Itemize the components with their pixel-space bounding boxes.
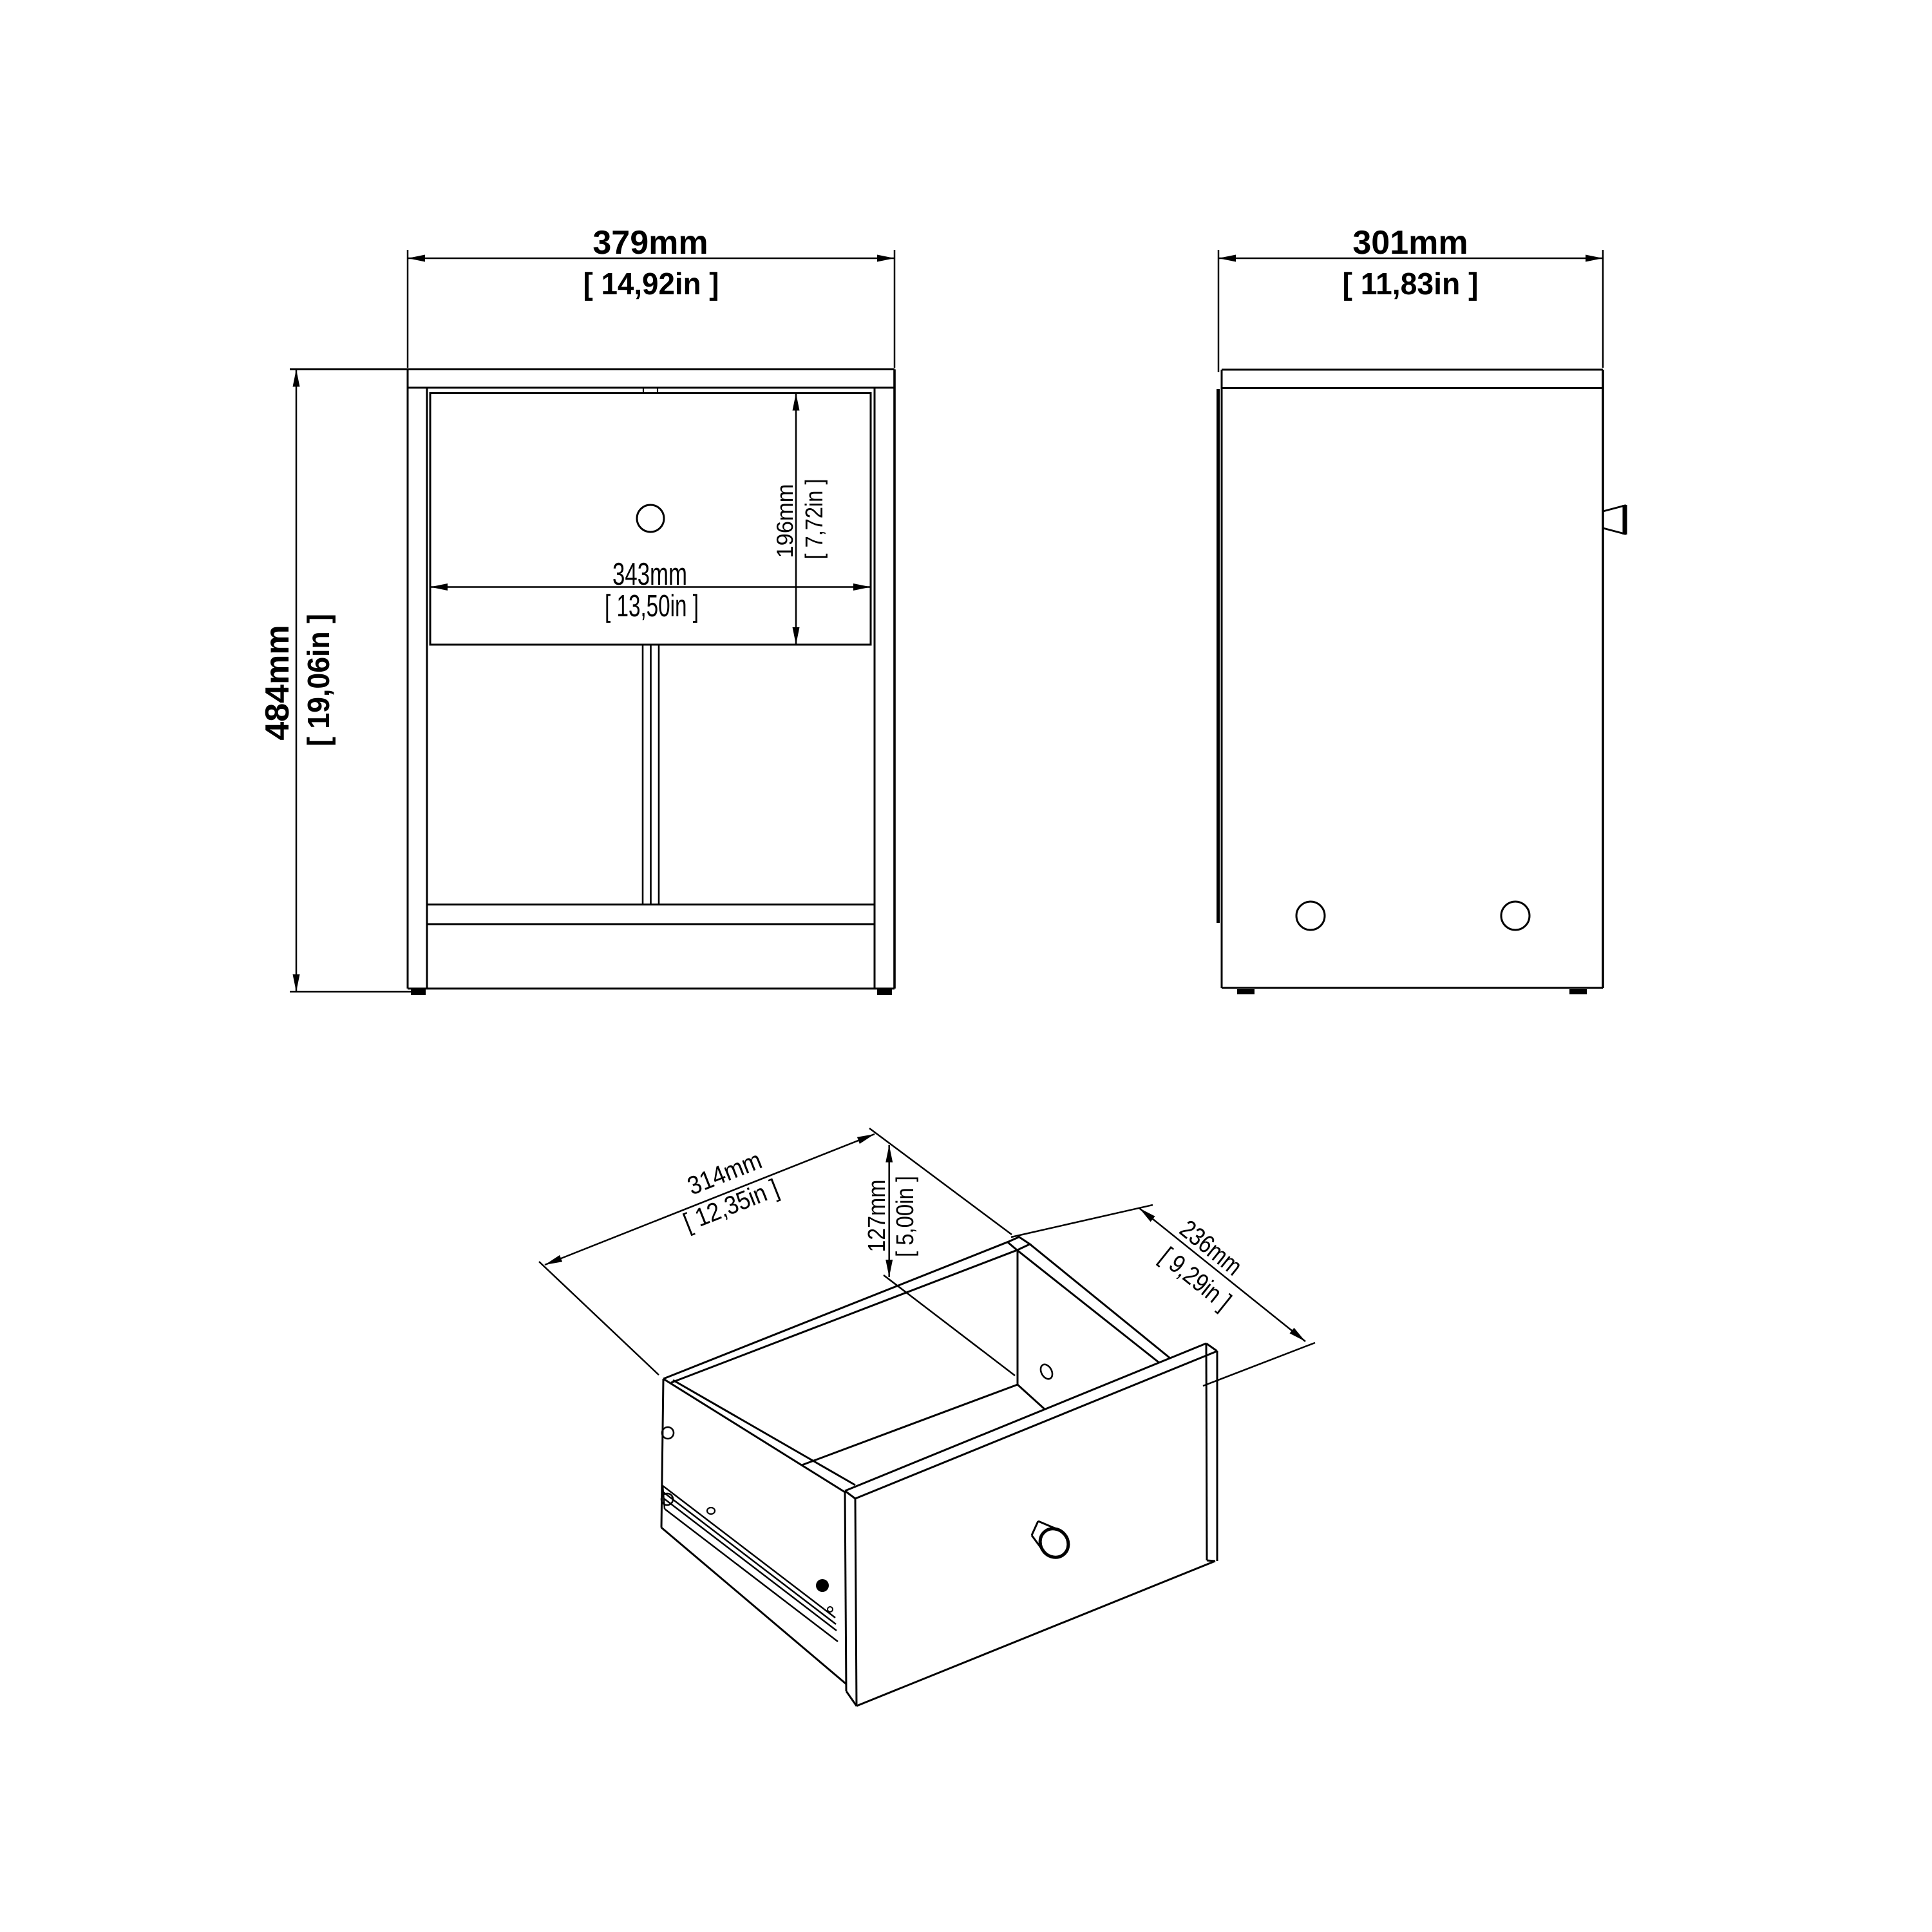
svg-text:301mm: 301mm [1352, 224, 1468, 261]
svg-text:127mm: 127mm [864, 1180, 891, 1253]
svg-text:[ 13,50in ]: [ 13,50in ] [605, 589, 699, 623]
svg-text:[ 11,83in ]: [ 11,83in ] [1343, 267, 1479, 301]
svg-text:[ 14,92in ]: [ 14,92in ] [583, 267, 719, 301]
svg-text:[ 5,00in ]: [ 5,00in ] [892, 1176, 919, 1257]
svg-text:196mm: 196mm [772, 484, 798, 558]
svg-text:379mm: 379mm [592, 224, 708, 261]
svg-text:[ 7,72in ]: [ 7,72in ] [801, 479, 828, 560]
svg-text:343mm: 343mm [612, 557, 687, 592]
svg-text:484mm: 484mm [259, 625, 296, 740]
svg-text:[ 19,06in ]: [ 19,06in ] [302, 614, 336, 746]
